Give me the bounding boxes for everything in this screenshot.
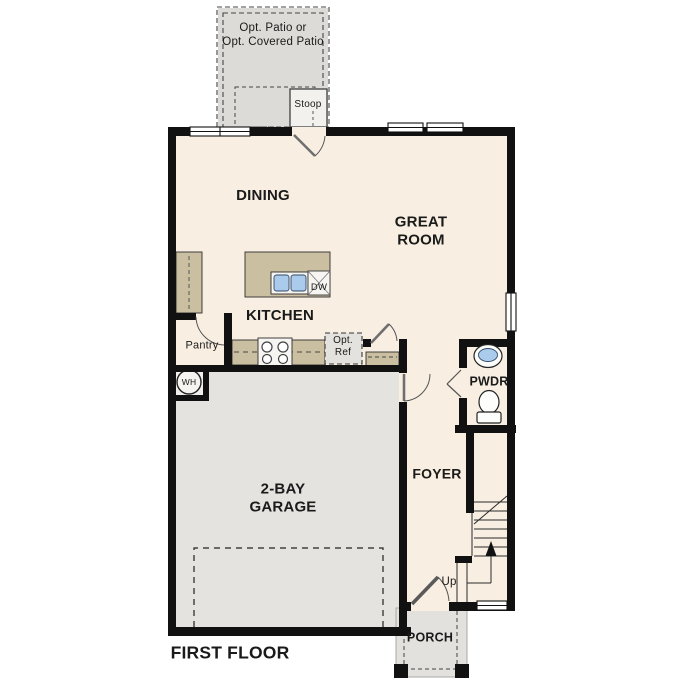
- range: [258, 338, 292, 367]
- powder-sink-bowl: [479, 349, 498, 362]
- wall-garage-right: [399, 365, 407, 636]
- wall-garage-top: [168, 365, 407, 372]
- window-dining: [190, 127, 250, 136]
- tall-cabinet: [176, 252, 202, 313]
- wall-pwdr-bottom: [455, 425, 516, 433]
- wall-right: [507, 127, 515, 611]
- window-right-wall: [506, 293, 516, 331]
- window-greatroom-1: [388, 123, 423, 132]
- wall-alcove-post: [363, 339, 371, 347]
- wall-stair-left: [466, 433, 474, 513]
- porch-post-left: [394, 664, 408, 678]
- opt-patio-area: [217, 7, 329, 127]
- wall-pantry-stub: [174, 313, 196, 320]
- powder-toilet: [477, 391, 501, 424]
- window-greatroom-2: [427, 123, 463, 132]
- first-floor-plan: Opt. Patio or Opt. Covered Patio Stoop D…: [0, 0, 687, 687]
- opening-front-door: [411, 602, 449, 611]
- dishwasher: [308, 271, 330, 295]
- window-front-wall: [477, 601, 507, 610]
- wall-garage-bottom: [168, 627, 411, 636]
- garage-floor: [176, 372, 399, 628]
- wall-pantry-right: [224, 313, 232, 372]
- sink-basin-left: [274, 275, 289, 291]
- wh-tank: [177, 370, 201, 394]
- stoop: [290, 89, 327, 127]
- opening-stoop-door: [292, 127, 326, 136]
- opt-refrigerator: [325, 333, 362, 364]
- water-heater: [176, 368, 209, 401]
- sink-basin-right: [291, 275, 306, 291]
- wall-stair-jog: [455, 556, 472, 563]
- wall-alcove-stub: [399, 339, 407, 369]
- wh-wall-bottom: [176, 395, 209, 401]
- floorplan-drawing: [0, 0, 687, 687]
- opening-pwdr-door: [459, 368, 467, 398]
- porch-post-right: [455, 664, 469, 678]
- wall-left: [168, 127, 176, 636]
